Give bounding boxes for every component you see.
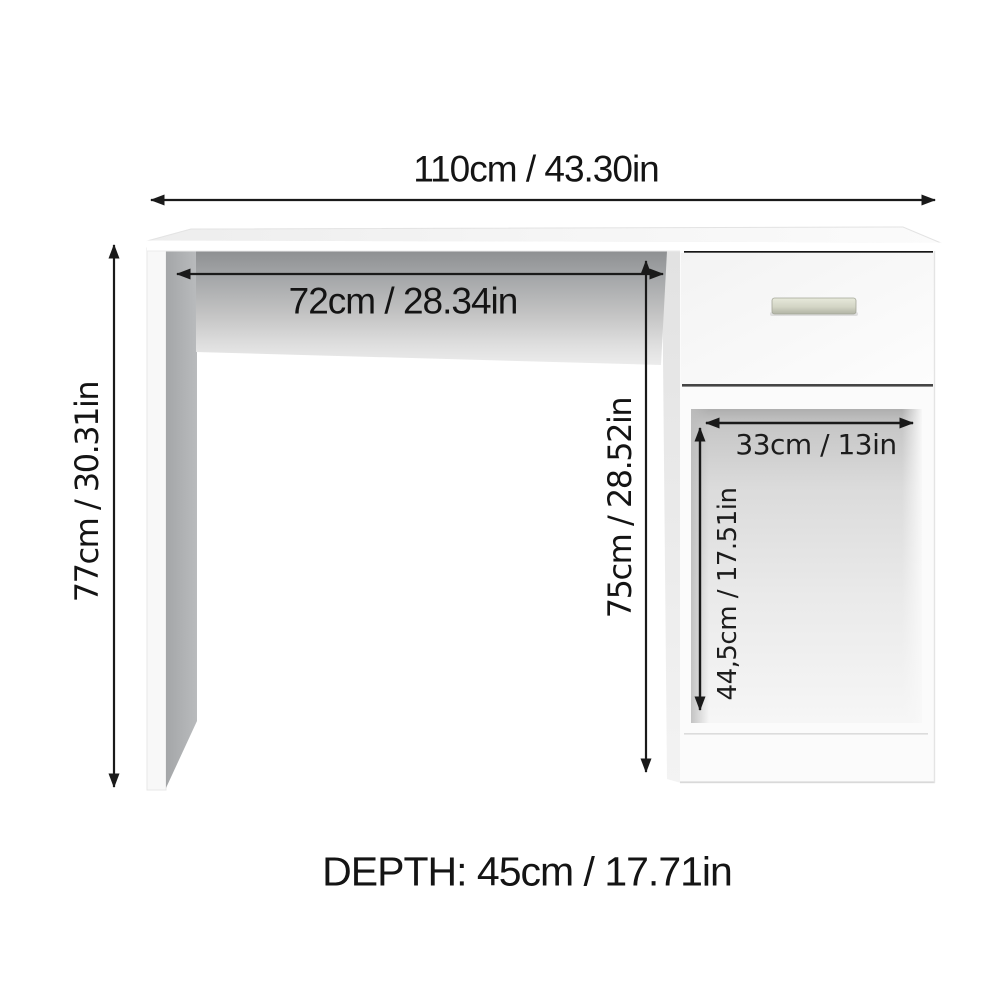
compartment-height-label: 44,5cm / 17.51in bbox=[715, 488, 741, 701]
pedestal-height-label: 75cm / 28.52in bbox=[604, 398, 636, 618]
total-width-label: 110cm / 43.30in bbox=[413, 151, 659, 188]
pedestal-side-panel bbox=[662, 251, 681, 783]
knee-space-width-label: 72cm / 28.34in bbox=[289, 283, 518, 320]
drawer-front bbox=[681, 253, 935, 384]
desk-dimension-diagram: 110cm / 43.30in 72cm / 28.34in 77cm / 30… bbox=[0, 0, 1000, 1000]
drawer-handle bbox=[772, 298, 856, 314]
drawer-bottom-gap bbox=[682, 384, 933, 387]
desk-top bbox=[147, 227, 941, 251]
compartment-width-label: 33cm / 13in bbox=[735, 431, 896, 459]
left-leg-panel bbox=[147, 248, 197, 790]
total-height-label: 77cm / 30.31in bbox=[71, 382, 103, 602]
plinth-line bbox=[684, 733, 928, 735]
depth-label: DEPTH: 45cm / 17.71in bbox=[322, 852, 732, 893]
pedestal-bottom-edge bbox=[680, 781, 935, 783]
